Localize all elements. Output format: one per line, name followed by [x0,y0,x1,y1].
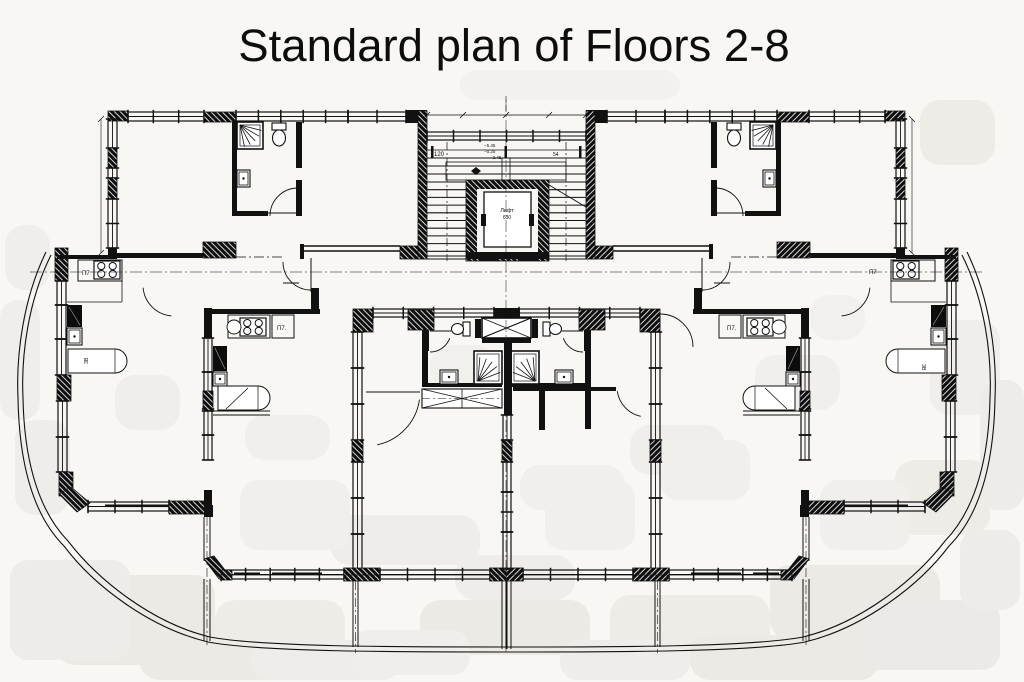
svg-text:П7: П7 [82,271,90,277]
svg-text:П7.: П7. [277,326,287,332]
svg-text:630: 630 [503,215,512,221]
svg-text:−0.25: −0.25 [484,149,496,154]
svg-text:120: 120 [434,152,445,158]
svg-text:54: 54 [553,152,559,158]
svg-text:П7.: П7. [727,326,737,332]
svg-text:ЗВ: ЗВ [84,357,90,364]
svg-text:П7: П7 [869,270,877,276]
svg-text:ЗВ: ЗВ [920,364,926,371]
svg-text:−2.45: −2.45 [490,155,502,160]
svg-text:Лифт: Лифт [500,208,514,214]
svg-text:Standard plan of Floors 2-8: Standard plan of Floors 2-8 [238,20,789,71]
svg-text:−5.45: −5.45 [484,143,496,148]
